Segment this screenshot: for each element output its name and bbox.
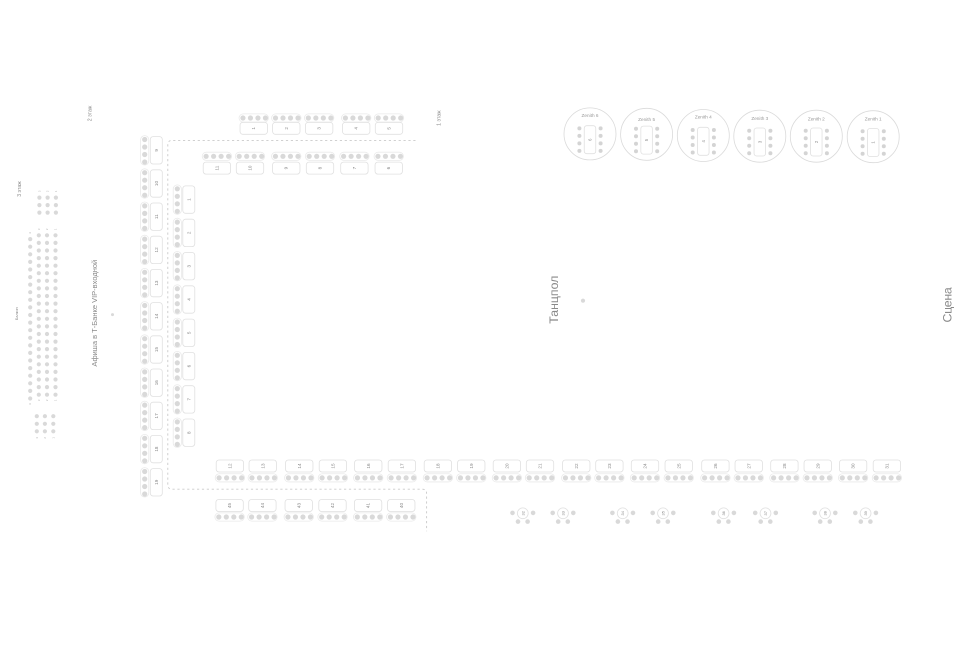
svg-text:19: 19 [469,463,474,469]
svg-text:33: 33 [561,511,566,515]
svg-text:22: 22 [574,463,579,469]
svg-text:Zenith 6: Zenith 6 [582,113,599,118]
svg-text:29: 29 [815,463,820,469]
svg-text:24: 24 [643,463,648,469]
svg-text:10: 10 [248,165,253,171]
svg-text:13: 13 [260,463,265,469]
svg-text:18: 18 [435,463,440,469]
svg-text:28: 28 [782,463,787,469]
svg-text:1 этаж: 1 этаж [436,110,442,126]
svg-text:26: 26 [713,463,718,469]
svg-text:17: 17 [399,463,404,469]
svg-text:Афиша в Т-Банке VIP-входной: Афиша в Т-Банке VIP-входной [90,260,99,367]
svg-text:14: 14 [297,463,302,469]
svg-text:25: 25 [676,463,681,469]
svg-text:30: 30 [851,463,856,469]
svg-text:Танцпол: Танцпол [547,276,561,324]
svg-text:16: 16 [366,463,371,469]
svg-text:31: 31 [884,463,889,469]
svg-text:36: 36 [721,511,726,515]
svg-text:37: 37 [763,511,768,515]
svg-text:42: 42 [330,503,335,509]
svg-text:Zenith 1: Zenith 1 [865,117,882,122]
svg-text:4: 4 [186,298,191,301]
svg-text:9: 9 [284,166,289,169]
svg-text:Zenith 5: Zenith 5 [638,117,655,122]
svg-text:17: 17 [154,413,159,419]
svg-text:41: 41 [366,503,371,509]
svg-text:2: 2 [284,127,289,130]
svg-text:15: 15 [154,347,159,353]
svg-text:1: 1 [251,127,256,130]
svg-text:Балкон: Балкон [15,307,19,320]
svg-text:4: 4 [354,127,359,130]
svg-text:12: 12 [227,463,232,469]
svg-text:6: 6 [386,166,391,169]
svg-text:6: 6 [186,364,191,367]
svg-text:5: 5 [186,331,191,334]
svg-text:19: 19 [154,479,159,485]
svg-text:23: 23 [607,463,612,469]
svg-text:13: 13 [154,280,159,286]
svg-text:Сцена: Сцена [940,287,954,322]
svg-text:20: 20 [504,463,509,469]
svg-text:27: 27 [746,463,751,469]
svg-text:44: 44 [260,503,265,509]
svg-text:Zenith 2: Zenith 2 [808,116,825,121]
svg-text:45: 45 [227,503,232,509]
svg-text:2: 2 [186,231,191,234]
svg-text:16: 16 [154,380,159,386]
svg-text:32: 32 [520,511,525,515]
svg-text:15: 15 [330,463,335,469]
svg-text:11: 11 [214,165,219,170]
svg-text:9: 9 [154,149,159,152]
svg-text:35: 35 [661,511,666,515]
svg-text:12: 12 [154,247,159,253]
svg-text:40: 40 [399,503,404,509]
svg-text:3: 3 [186,264,191,267]
svg-text:5: 5 [387,127,392,130]
svg-text:38: 38 [823,511,828,515]
svg-text:18: 18 [154,446,159,452]
svg-text:21: 21 [538,463,543,469]
svg-text:2 этаж: 2 этаж [88,105,94,121]
svg-text:3 этаж: 3 этаж [17,181,23,197]
svg-text:39: 39 [863,511,868,515]
svg-text:11: 11 [154,214,159,219]
svg-text:8: 8 [318,166,323,169]
svg-text:7: 7 [186,398,191,401]
svg-text:1: 1 [186,198,191,201]
svg-text:43: 43 [296,503,301,509]
svg-text:Zenith 3: Zenith 3 [751,116,768,121]
svg-text:7: 7 [352,166,357,169]
svg-text:8: 8 [186,431,191,434]
svg-text:10: 10 [154,181,159,187]
svg-text:Zenith 4: Zenith 4 [695,114,712,119]
svg-text:3: 3 [317,127,322,130]
svg-text:14: 14 [154,313,159,319]
